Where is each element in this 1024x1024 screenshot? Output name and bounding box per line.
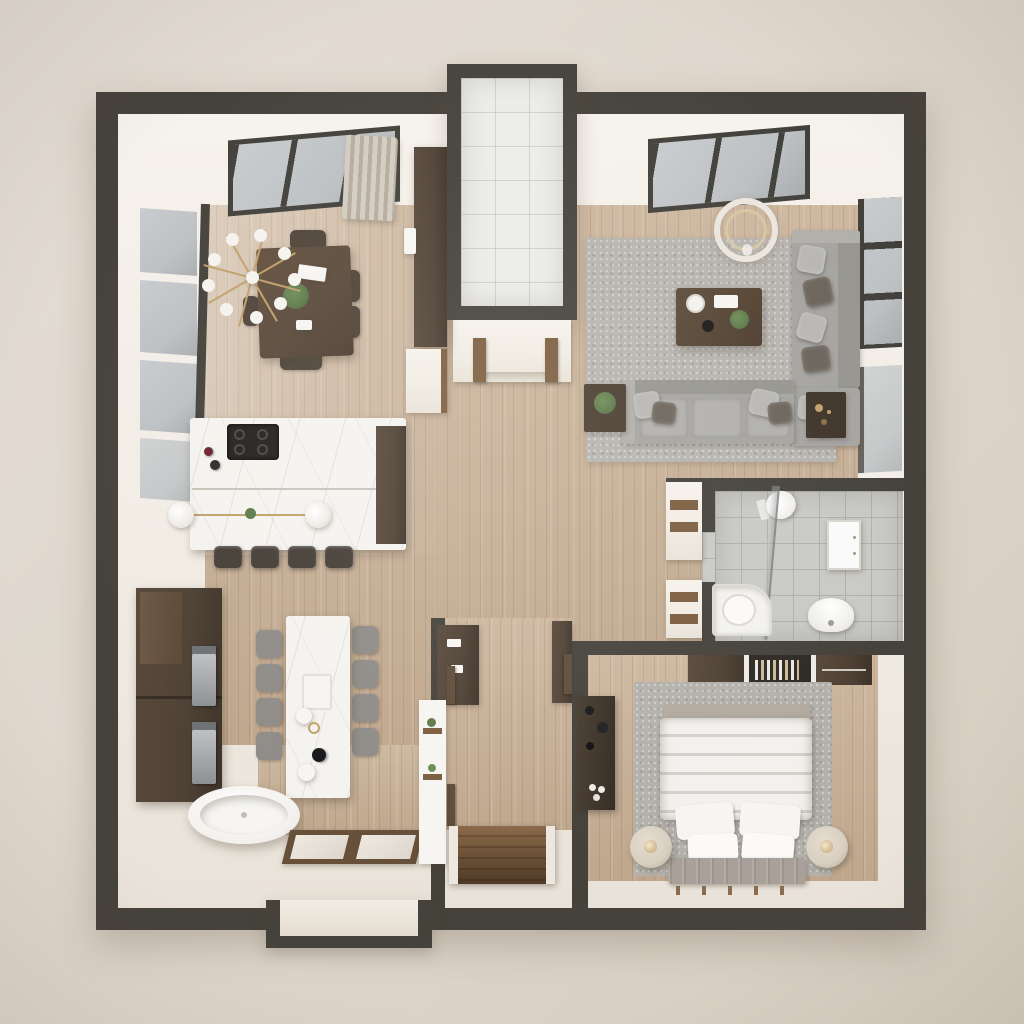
- nook-chair-left-4: [256, 732, 282, 760]
- bar-stool-2: [251, 546, 279, 568]
- bath-wall-cabinet: [827, 520, 861, 570]
- niche-shelf-1: [670, 500, 698, 510]
- console-decor-1: [447, 639, 461, 647]
- oven-upper: [192, 646, 216, 706]
- table-gold-plate: [308, 722, 320, 734]
- bay-interior: [280, 900, 418, 936]
- pillow-1: [796, 244, 827, 275]
- accent-table-gold-decor: [815, 404, 823, 412]
- cabinet-knob-1: [853, 536, 856, 539]
- table-plate-1: [296, 708, 312, 724]
- kitchen-island: [190, 418, 406, 550]
- wardrobe-row: [688, 655, 872, 685]
- book-spines: [755, 660, 799, 680]
- bedroom-decor-shelf: [577, 696, 615, 810]
- nook-chair-right-4: [352, 728, 378, 756]
- bed-frame-slats: [676, 886, 798, 895]
- wine-bottle-red: [204, 447, 213, 456]
- niche-shelf-4: [670, 614, 698, 624]
- left-window-pane-4: [140, 438, 197, 502]
- hall-door-left-2: [447, 784, 455, 826]
- bar-stool-4: [325, 546, 353, 568]
- lamp-left: [644, 840, 657, 853]
- entry-door-post-right: [545, 338, 558, 382]
- nook-chair-right-1: [352, 626, 378, 654]
- right-window-mullions: [864, 197, 902, 349]
- right-window-upper: [858, 197, 902, 349]
- wardrobe-box-left: [688, 655, 744, 685]
- niche-shelf-3: [670, 592, 698, 602]
- bathtub: [188, 786, 300, 844]
- wardrobe-box-right: [816, 655, 872, 685]
- coffee-table-bowl: [702, 320, 714, 332]
- nightstand-right: [806, 826, 848, 868]
- table-tray: [302, 674, 332, 710]
- table-black-kettle: [312, 748, 326, 762]
- skylight-right-mullions: [653, 130, 805, 207]
- burner-3: [234, 444, 245, 455]
- sofa-right-arm: [792, 230, 860, 243]
- bed-head-bench: [668, 858, 806, 884]
- panel-plant-2: [428, 764, 436, 772]
- bar-stool-1: [214, 546, 242, 568]
- nook-chair-left-2: [256, 664, 282, 692]
- cabinet-door-light: [140, 592, 182, 664]
- nightstand-left: [630, 826, 672, 868]
- sofa-side-table: [584, 384, 626, 432]
- right-window-lower: [858, 365, 902, 473]
- wardrobe-rod: [822, 669, 866, 671]
- hall-console-left: [437, 625, 479, 705]
- sofa-right-back: [838, 230, 860, 388]
- bathroom-left-wall-upper: [702, 478, 715, 532]
- bedroom-top-wall: [572, 641, 906, 655]
- glass-floor-panel-1: [290, 835, 349, 859]
- shower-drain-arc: [722, 594, 756, 626]
- entry-bench: [406, 349, 447, 413]
- wardrobe-book-shelf: [749, 655, 811, 685]
- sputnik-bulbs: [246, 271, 259, 284]
- decor-bottle-3: [586, 742, 594, 750]
- left-window-pane-2: [140, 280, 197, 356]
- lamp-right: [820, 840, 833, 853]
- decor-bottle-1: [585, 706, 594, 715]
- pillow-8: [651, 401, 677, 425]
- bar-stool-3: [288, 546, 316, 568]
- entry-door-post-left: [473, 338, 486, 382]
- decor-bottle-2: [597, 722, 608, 733]
- sink-faucet: [828, 620, 834, 626]
- island-ledge-line: [192, 488, 376, 490]
- left-window-pane-3: [140, 360, 197, 434]
- floor-plan-render: [0, 0, 1024, 1024]
- pendant-globe-left: [168, 502, 194, 528]
- side-table-plant: [594, 392, 616, 414]
- nook-chair-right-2: [352, 660, 378, 688]
- nook-long-table: [286, 616, 350, 798]
- shower-tray: [712, 584, 772, 636]
- vestibule-tile-floor: [461, 78, 563, 306]
- accent-table: [806, 392, 846, 438]
- burner-2: [257, 429, 268, 440]
- sofa-seat-2: [692, 398, 742, 438]
- glass-floor-panel-2: [356, 835, 416, 859]
- panel-shelf-2: [423, 774, 442, 780]
- hall-shelf-panel: [419, 700, 446, 864]
- bathtub-drain: [241, 812, 247, 818]
- entry-step-shadow: [486, 372, 545, 382]
- burner-4: [257, 444, 268, 455]
- coffee-table-tray: [686, 294, 705, 313]
- ring-chandelier: [714, 198, 778, 262]
- hall-door-right: [564, 654, 572, 694]
- pendant-globe-right: [305, 502, 331, 528]
- nook-chair-left-1: [256, 630, 282, 658]
- cooktop: [227, 424, 279, 460]
- burner-1: [234, 429, 245, 440]
- left-window-pane-1: [140, 208, 197, 276]
- pendant-plant-sprig: [245, 508, 256, 519]
- coffee-table-plant: [730, 310, 749, 329]
- nook-chair-left-3: [256, 698, 282, 726]
- decor-candles: [589, 784, 596, 791]
- hall-door-left-1: [447, 666, 455, 704]
- coffee-table: [676, 288, 762, 346]
- glass-floor-frame: [282, 830, 424, 864]
- table-plate-2: [298, 764, 315, 781]
- oven-lower: [192, 722, 216, 784]
- wine-bottle-dark: [210, 460, 220, 470]
- bathroom-door-gap: [702, 532, 715, 582]
- wall-panel-device: [404, 228, 416, 254]
- island-wood-end: [376, 426, 406, 544]
- nook-chair-right-3: [352, 694, 378, 722]
- kitchen-tall-cabinets: [136, 588, 222, 802]
- staircase-down: [449, 826, 555, 884]
- sputnik-chandelier: [202, 228, 302, 328]
- curtain: [342, 135, 398, 222]
- niche-shelf-2: [670, 522, 698, 532]
- skylight-right: [648, 125, 810, 213]
- panel-shelf-1: [423, 728, 442, 734]
- entry-closet: [414, 147, 447, 347]
- entry-bench-wood-edge: [441, 349, 447, 413]
- pillow-2: [801, 275, 834, 308]
- pillow-10: [767, 401, 793, 425]
- staircase-depth-shade: [458, 826, 546, 884]
- bathroom-sink: [808, 598, 854, 632]
- pillow-4: [800, 344, 831, 374]
- bath-niche-lower: [666, 580, 702, 638]
- coffee-table-box: [714, 295, 738, 308]
- ring-chandelier-drop: [742, 244, 752, 256]
- bath-niche-upper: [666, 482, 702, 560]
- panel-plant-1: [427, 718, 436, 727]
- cabinet-knob-2: [853, 552, 856, 555]
